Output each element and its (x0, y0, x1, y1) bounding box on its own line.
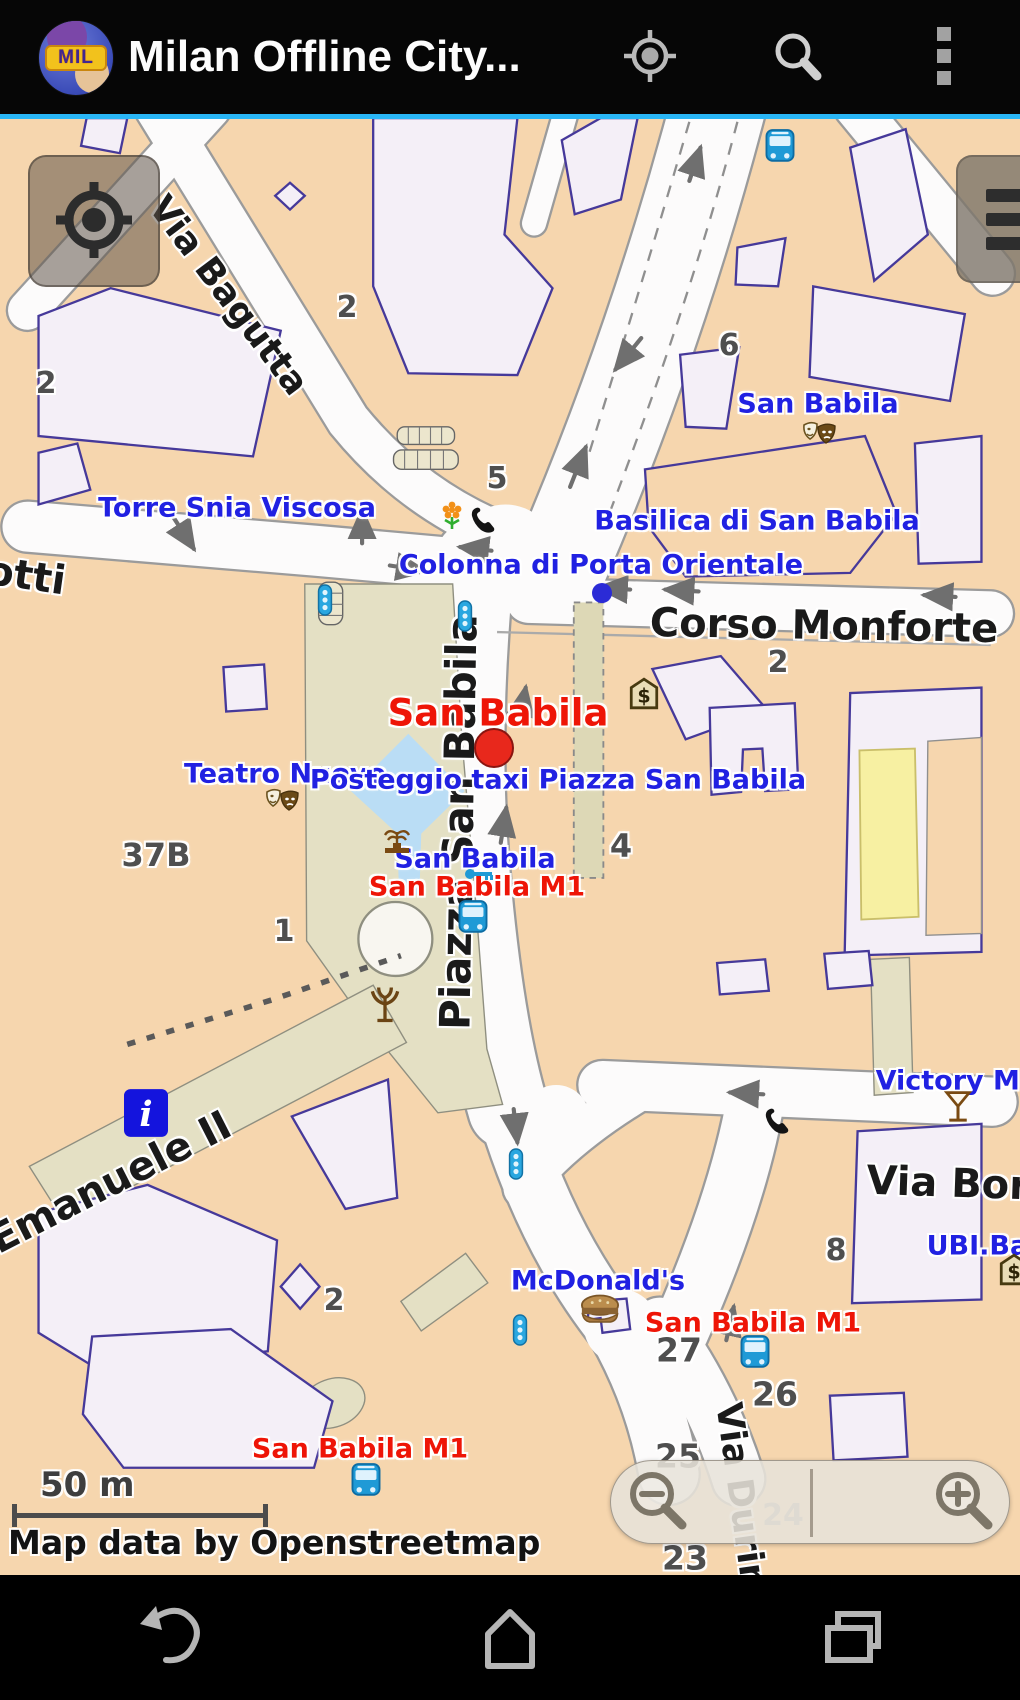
my-location-map-button[interactable] (28, 155, 160, 287)
search-action-button[interactable] (752, 0, 844, 114)
zoom-control (610, 1460, 1010, 1544)
scale-bar: 50 m (12, 1465, 268, 1518)
map-attribution: Map data by Openstreetmap (8, 1523, 540, 1562)
home-icon (462, 1596, 558, 1679)
layers-button[interactable] (956, 155, 1020, 283)
back-icon (122, 1596, 218, 1679)
layers-icon (986, 189, 1020, 250)
zoom-control-divider (810, 1469, 813, 1537)
search-icon (769, 27, 827, 88)
scale-bar-line (12, 1513, 268, 1518)
map-canvas[interactable] (0, 119, 1020, 1575)
action-bar: MIL Milan Offline City... (0, 0, 1020, 114)
nav-back-button[interactable] (0, 1595, 340, 1680)
zoom-in-icon (930, 1468, 996, 1537)
logo-mil-badge: MIL (45, 45, 107, 71)
overflow-menu-icon (936, 25, 952, 90)
app-logo: MIL (38, 20, 114, 96)
recents-icon (802, 1596, 898, 1679)
overflow-menu-button[interactable] (898, 0, 990, 114)
app-title: Milan Offline City... (128, 32, 521, 82)
system-nav-bar (0, 1575, 1020, 1700)
nav-recents-button[interactable] (680, 1595, 1020, 1680)
phone-screen: MIL Milan Offline City... (0, 0, 1020, 1700)
target-icon (51, 177, 137, 266)
my-location-action-button[interactable] (604, 0, 696, 114)
zoom-out-icon (624, 1468, 690, 1537)
zoom-out-button[interactable] (621, 1466, 693, 1538)
my-location-icon (620, 26, 680, 89)
scale-label: 50 m (40, 1465, 268, 1505)
zoom-in-button[interactable] (927, 1466, 999, 1538)
map-viewport: Via BaguttaottiCorso MonfortePiazza San … (0, 119, 1020, 1575)
nav-home-button[interactable] (340, 1595, 680, 1680)
